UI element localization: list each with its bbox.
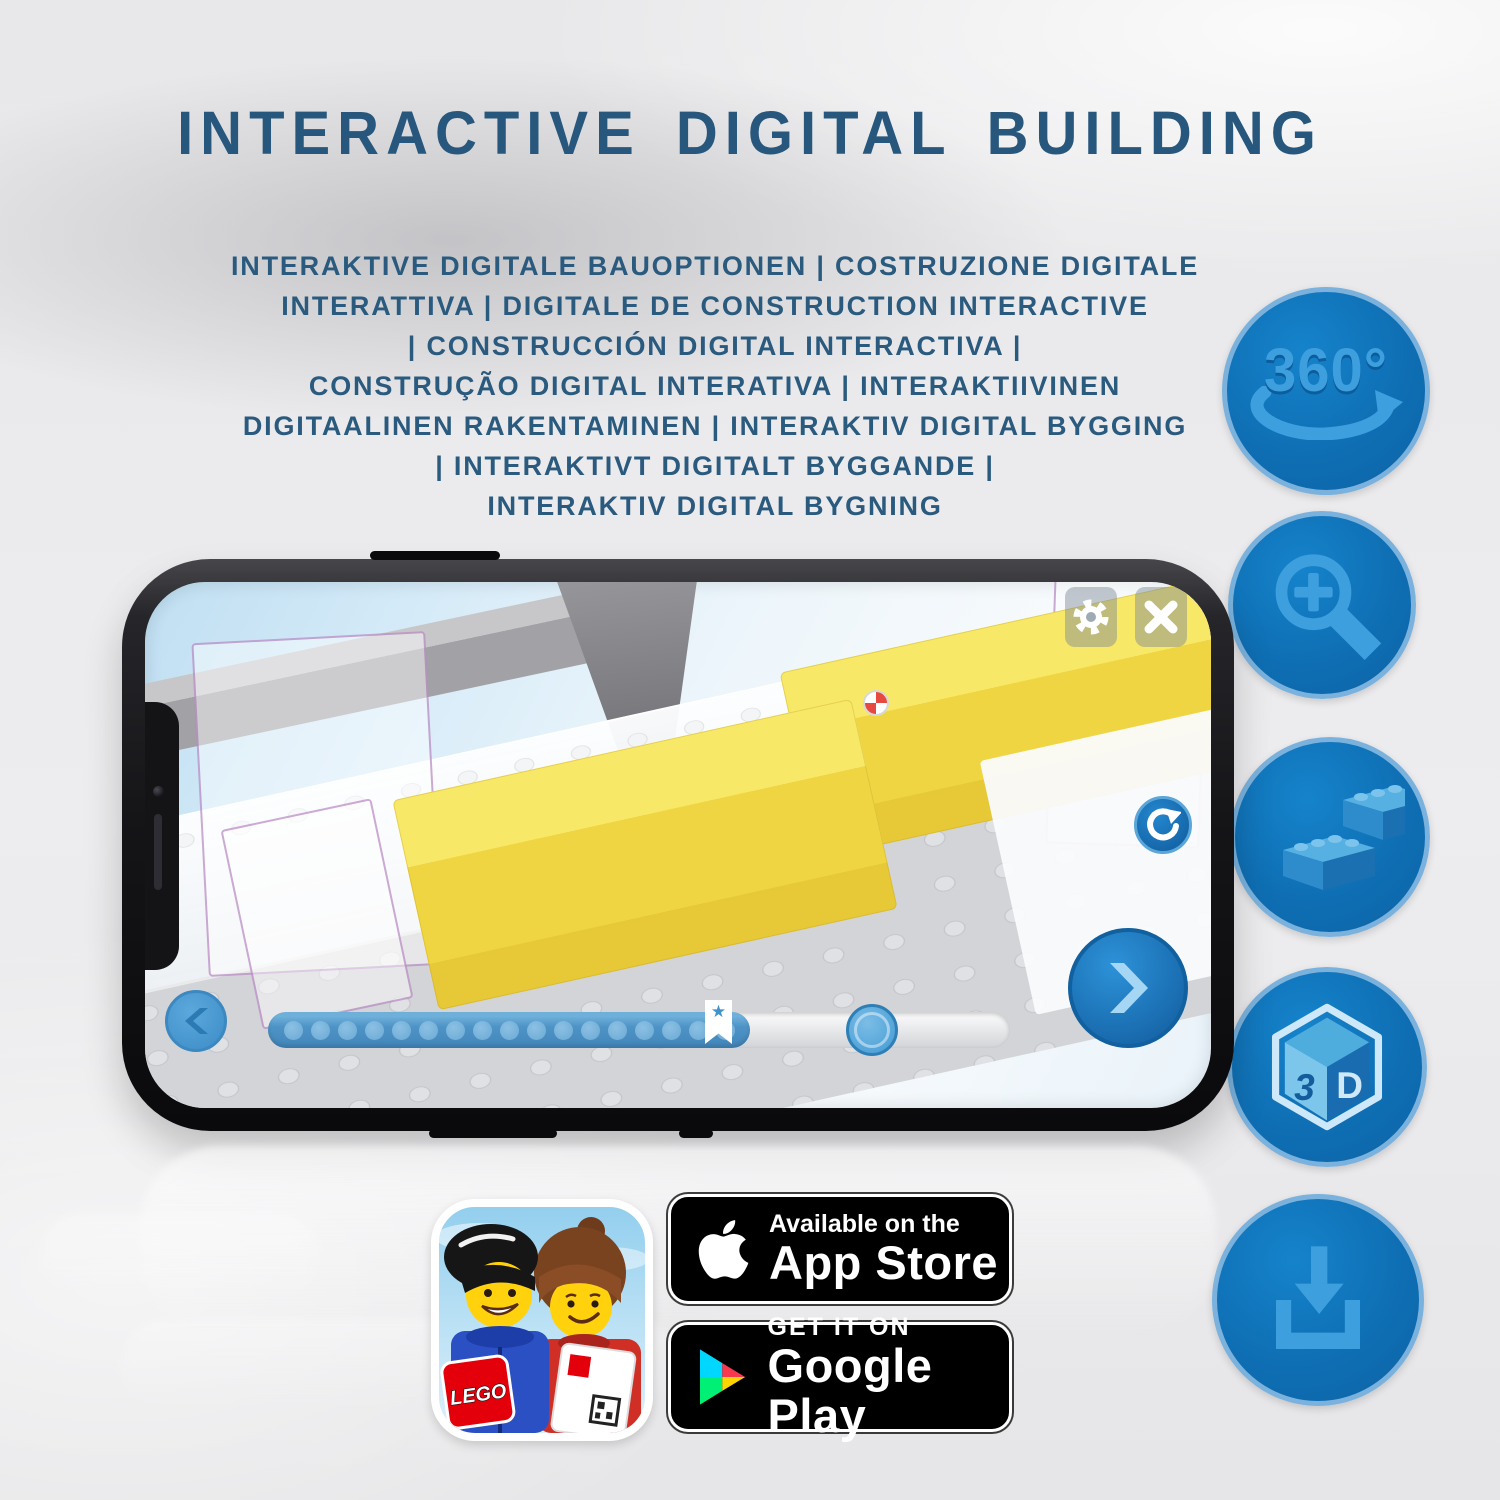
chevron-left-icon	[184, 1008, 208, 1034]
progress-dots	[284, 1021, 735, 1040]
progress-dot	[608, 1021, 627, 1040]
subtitle-line: CONSTRUÇÃO DIGITAL INTERATIVA | INTERAKT…	[35, 366, 1395, 406]
app-store-badge[interactable]: Available on the App Store	[668, 1194, 1012, 1304]
subtitle-line: DIGITAALINEN RAKENTAMINEN | INTERAKTIV D…	[35, 406, 1395, 446]
progress-dot	[284, 1021, 303, 1040]
subtitle-line: INTERATTIVA | DIGITALE DE CONSTRUCTION I…	[35, 286, 1395, 326]
speaker-icon	[154, 814, 162, 890]
close-button[interactable]	[1135, 587, 1187, 647]
progress-dot	[473, 1021, 492, 1040]
feature-download	[1212, 1194, 1424, 1406]
next-step-button[interactable]	[1068, 928, 1188, 1048]
google-play-label: Google Play	[768, 1341, 1009, 1440]
previous-step-button[interactable]	[165, 990, 227, 1052]
subtitle-line: INTERAKTIV DIGITAL BYGNING	[35, 486, 1395, 526]
phone-frame: ★	[122, 559, 1234, 1131]
progress-dot	[527, 1021, 546, 1040]
apple-icon	[697, 1216, 749, 1282]
3d-cube-icon: 3 D	[1255, 995, 1399, 1139]
progress-fill	[268, 1012, 750, 1048]
subtitle-block: INTERAKTIVE DIGITALE BAUOPTIONEN | COSTR…	[35, 246, 1395, 526]
scene-lifebuoy-detail	[863, 690, 889, 716]
rotate-view-button[interactable]	[1134, 796, 1192, 854]
page-title: INTERACTIVE DIGITAL BUILDING	[0, 98, 1500, 169]
rotate-icon	[1145, 807, 1181, 843]
app-store-label: App Store	[769, 1238, 998, 1287]
feature-360-rotation: 360°	[1222, 287, 1430, 495]
feature-zoom-in	[1228, 511, 1416, 699]
progress-dot	[581, 1021, 600, 1040]
progress-dot	[392, 1021, 411, 1040]
progress-dot	[446, 1021, 465, 1040]
progress-dot	[338, 1021, 357, 1040]
google-play-icon	[697, 1343, 748, 1411]
marketing-graphic: INTERACTIVE DIGITAL BUILDING INTERAKTIVE…	[0, 0, 1500, 1500]
progress-dot	[419, 1021, 438, 1040]
close-icon	[1143, 599, 1179, 635]
google-play-tagline: GET IT ON	[768, 1314, 1009, 1342]
notch	[145, 702, 179, 970]
chevron-right-icon	[1108, 963, 1148, 1013]
progress-handle[interactable]	[846, 1004, 898, 1056]
reflection-highlight	[40, 1215, 320, 1295]
subtitle-line: | INTERAKTIVT DIGITALT BYGGANDE |	[35, 446, 1395, 486]
bottom-speaker-slot	[429, 1129, 557, 1138]
app-store-tagline: Available on the	[769, 1211, 998, 1239]
progress-dot	[311, 1021, 330, 1040]
progress-dot	[554, 1021, 573, 1040]
subtitle-line: INTERAKTIVE DIGITALE BAUOPTIONEN | COSTR…	[35, 246, 1395, 286]
svg-text:D: D	[1336, 1064, 1363, 1106]
360-label: 360°	[1264, 341, 1388, 402]
lego-minifigures-icon: LEGO	[439, 1207, 645, 1433]
subtitle-line: | CONSTRUCCIÓN DIGITAL INTERACTIVA |	[35, 326, 1395, 366]
progress-dot	[365, 1021, 384, 1040]
progress-track[interactable]: ★	[268, 1012, 1010, 1048]
bottom-mic-slot	[679, 1129, 713, 1138]
camera-icon	[153, 786, 164, 797]
progress-dot	[500, 1021, 519, 1040]
volume-button	[370, 551, 500, 560]
progress-dot	[662, 1021, 681, 1040]
feature-3d-view: 3 D	[1227, 967, 1427, 1167]
brick-icon	[1255, 762, 1405, 912]
zoom-in-icon	[1258, 541, 1386, 669]
google-play-badge[interactable]: GET IT ON Google Play	[668, 1322, 1012, 1432]
svg-text:3: 3	[1294, 1066, 1315, 1108]
phone-screen: ★	[145, 582, 1211, 1108]
lego-app-icon[interactable]: LEGO	[431, 1199, 653, 1441]
gear-icon	[1071, 597, 1111, 637]
progress-dot	[635, 1021, 654, 1040]
settings-button[interactable]	[1065, 587, 1117, 647]
feature-brick	[1230, 737, 1430, 937]
download-icon	[1248, 1230, 1388, 1370]
